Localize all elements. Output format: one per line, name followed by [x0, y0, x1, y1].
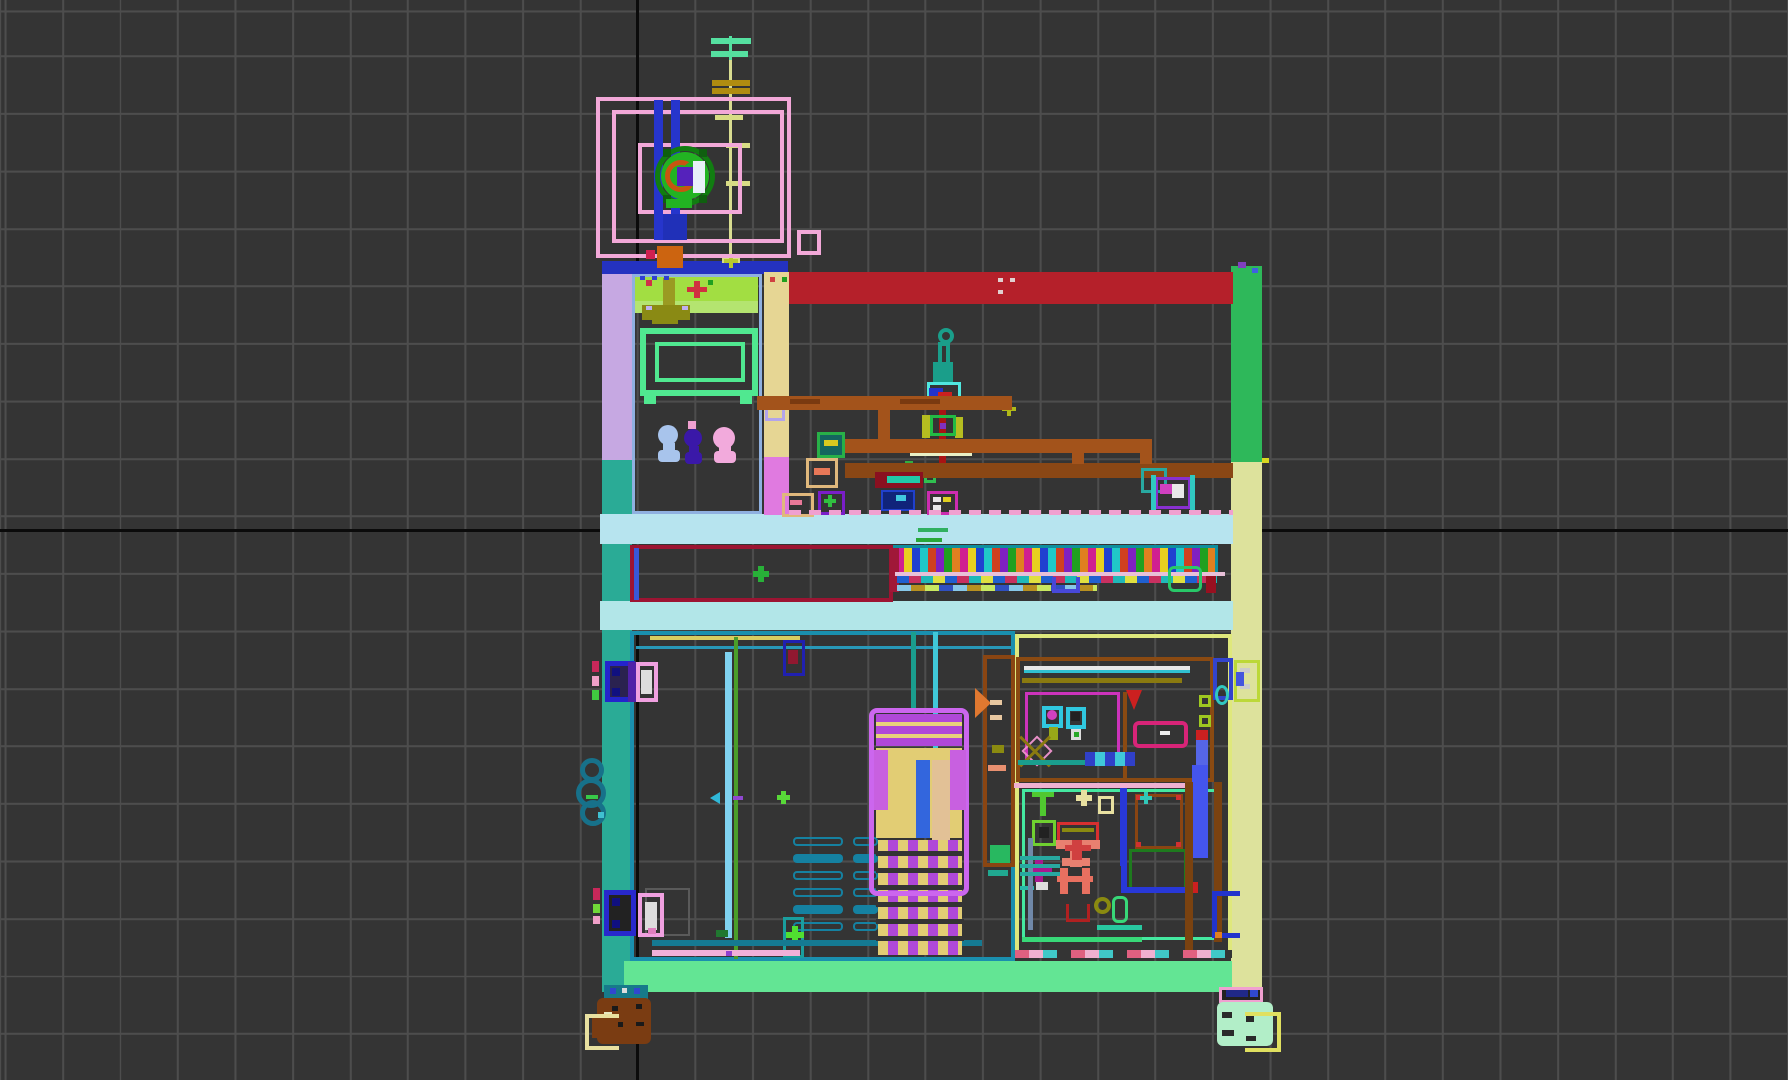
bulb-blue-base — [658, 450, 680, 462]
stacker-bar3 — [876, 738, 962, 746]
chamber-trap-dash2 — [682, 306, 688, 310]
bay-green-hline-938 — [1022, 937, 1142, 942]
door-cyan-arrow — [710, 792, 720, 804]
door-vline-lightblue — [725, 652, 732, 938]
bay-teal-plus-h — [1140, 796, 1152, 800]
camera-rail-l — [1151, 475, 1156, 511]
clamp-lower-blue — [604, 890, 636, 936]
spindle-square-small — [797, 230, 821, 255]
bay-blue-bracket — [1212, 891, 1240, 938]
spindle-crimson-dot — [646, 250, 655, 259]
stacker-vline-teal — [911, 632, 916, 708]
right-column-green — [1231, 266, 1262, 462]
hopper-salmon-dash — [988, 765, 1006, 771]
bay-grayblue-vline — [1028, 838, 1033, 930]
camera-unit-arch — [1172, 484, 1184, 498]
rail-top-mark1 — [790, 399, 820, 404]
foot-left-bracket — [585, 1014, 619, 1050]
panel-cyan-line — [1024, 670, 1190, 673]
drawer-green-plus — [753, 566, 769, 582]
rail-post-3 — [1140, 448, 1152, 464]
chamber-band-dot3 — [664, 276, 669, 280]
bay-red-open-rect — [1066, 904, 1090, 922]
fixture-purple-plus-h — [824, 499, 836, 503]
panel-red-tri — [1126, 690, 1142, 710]
sensor2-dot — [1071, 712, 1080, 721]
right-column-top-dot — [1238, 262, 1246, 268]
bay-red-t-h — [1065, 845, 1091, 851]
pink-dash-line — [789, 510, 1233, 515]
foot-left-cap-dot2 — [622, 988, 627, 993]
vent-slat-2a — [793, 854, 843, 863]
khaki-strip-dot-red — [770, 277, 775, 282]
red-beam-dot3 — [998, 290, 1003, 294]
door-green-hook — [716, 930, 728, 937]
hopper-brown-frame — [983, 655, 1015, 867]
bay-teal-hline1 — [1020, 856, 1060, 860]
foot-right-notch1 — [1222, 1012, 1232, 1018]
chamber-band-dot1 — [640, 276, 645, 280]
bay-green-capsule — [1112, 896, 1128, 923]
bay-olive-ring — [1094, 897, 1111, 914]
vent-slat-3a — [793, 871, 843, 880]
column-plate-blue — [1236, 672, 1244, 686]
camera-rail-r — [1190, 475, 1195, 511]
clamp-upper-strip-pink — [592, 676, 599, 686]
fixture-tan-1-bar — [814, 468, 830, 475]
panel-red-cap — [1196, 730, 1208, 740]
clamp-upper-strip-green — [592, 690, 599, 700]
antenna-bar-gold2 — [712, 88, 750, 94]
panel-lime-sq2 — [1199, 715, 1211, 727]
vent-slat-4a — [793, 888, 843, 897]
conveyor-green-dash — [916, 538, 942, 542]
bay-brown-dot2 — [1176, 795, 1181, 800]
base-beam-green — [624, 961, 1232, 992]
khaki-strip-right — [764, 272, 789, 457]
sensor2-foot-dot — [1074, 732, 1079, 737]
bay-white-bit — [1036, 882, 1048, 890]
chamber-band-dot-green — [708, 280, 713, 285]
foot-left-dot2 — [636, 1004, 642, 1009]
deck-green-dash — [918, 528, 948, 532]
clamp-upper-strip-crimson — [592, 661, 599, 672]
cyan-deck-lower — [600, 601, 1233, 630]
door-navy-glyph — [788, 650, 798, 664]
panel-lime-sq1 — [1199, 695, 1211, 707]
bulb-indigo-cap — [688, 421, 696, 429]
red-beam-dot2 — [1010, 278, 1015, 282]
conveyor-darkred-bit — [1206, 576, 1216, 593]
robot-olive-bar-r — [955, 417, 963, 438]
robot-green-box-dot — [940, 423, 946, 429]
bay-pink-line — [1014, 783, 1196, 788]
gear-hub-purple — [677, 167, 694, 186]
chamber-red-cross-h — [687, 287, 707, 293]
rail-post-2 — [1072, 452, 1084, 464]
gear-lug-tr — [699, 149, 707, 157]
conveyor-u-bracket — [1052, 577, 1080, 593]
clamp-upper-dot1 — [612, 668, 620, 676]
stacker-blue-bar — [916, 760, 930, 838]
fixture-purple-plus — [824, 495, 836, 507]
spindle-orange-block — [657, 246, 683, 268]
vent-slat-5a — [793, 905, 843, 914]
rail-top-mark2 — [900, 399, 940, 404]
khaki-strip-dot-green — [782, 277, 787, 282]
door-violet-dash — [733, 796, 743, 800]
camera-unit-magenta — [1160, 484, 1172, 494]
gear-stem-blue — [663, 214, 687, 240]
bay-blue-vline2 — [1121, 840, 1127, 892]
cabinet-left-khaki-line — [650, 636, 800, 640]
rail-post-1 — [878, 408, 890, 440]
bay-orange-dot — [1215, 932, 1222, 938]
stacker-bar2 — [876, 726, 962, 734]
hopper-green-bottom — [990, 845, 1010, 863]
column-bracket-curl — [1215, 685, 1229, 705]
drawer-green-plus-h — [753, 571, 769, 576]
foot-left-dot1 — [612, 1006, 618, 1011]
antenna-cross-h — [724, 259, 738, 264]
rail-mid — [842, 439, 1152, 453]
panel-bluecyan-dashes — [1085, 752, 1135, 766]
clamp-lower-pink-dot — [648, 928, 656, 934]
antenna-bar-gold1 — [712, 80, 750, 86]
viewport-canvas[interactable] — [0, 0, 1788, 1080]
bay-brown-vline1 — [1185, 782, 1193, 954]
side-gear-cyan-dot — [598, 812, 604, 818]
clamp-lower-pink-core — [645, 902, 657, 930]
foot-left-cap-dot3 — [634, 988, 640, 994]
hopper-dash1 — [990, 700, 1002, 705]
left-column-plum — [602, 274, 632, 460]
vent-slat-6b — [853, 922, 878, 931]
gear-bracket-white — [693, 161, 705, 193]
cabinet-left-cyan-line — [636, 646, 1011, 649]
antenna-bar-green2 — [711, 51, 748, 57]
bay-lime-t-h — [1032, 792, 1054, 797]
hopper-orange-arrow — [975, 688, 991, 718]
top-red-beam — [789, 272, 1233, 304]
clamp-lower-strip-pink — [593, 916, 600, 924]
bay-olive-line — [1062, 828, 1094, 832]
panel-olive-line — [1022, 678, 1182, 683]
stacker-blotch-l — [874, 750, 888, 810]
fixture-maroon-teal — [887, 476, 920, 483]
vent-slat-1a — [793, 837, 843, 846]
bulb-indigo-base — [685, 452, 702, 464]
hopper-olive-bit — [992, 745, 1004, 753]
clamp-upper-dot2 — [612, 688, 620, 696]
clamp-lower-strip-crimson — [593, 888, 600, 900]
clamp-lower-dot2 — [612, 920, 620, 928]
foot-right-notch3 — [1222, 1030, 1234, 1036]
bay-lime-box-core — [1039, 827, 1049, 838]
chamber-olive-stick — [663, 278, 675, 306]
side-gear-green-dash — [586, 795, 598, 799]
bay-khaki-plus-h — [1076, 795, 1092, 800]
robot-shoulder — [933, 362, 953, 382]
right-column-top-dot2 — [1252, 268, 1258, 273]
hopper-teal-dash — [988, 870, 1008, 876]
stacker-tan-bar — [932, 760, 950, 840]
bay-teal-plus — [1140, 792, 1152, 804]
stacker-check-gap5 — [876, 919, 964, 924]
bay-teal-hline-925 — [1097, 925, 1142, 930]
cabinet-left-violet-dot — [726, 951, 732, 956]
fixture-magenta-c2 — [943, 497, 951, 502]
clamp-upper-pink-core — [641, 670, 652, 694]
robot-olive-bar-l — [922, 415, 930, 438]
bay-clamp-h — [1057, 876, 1093, 882]
vent-slat-5b — [853, 905, 878, 914]
sensor1-dot — [1047, 710, 1057, 720]
stacker-check-gap4 — [876, 902, 964, 907]
bay-brown-dot4 — [1176, 842, 1181, 847]
bulb-pink-base — [714, 451, 736, 463]
foot-right-bracket — [1245, 1012, 1281, 1052]
bay-bottom-dashes — [1015, 950, 1232, 958]
chamber-band-dot-red — [646, 280, 652, 286]
chamber-trap-dash1 — [646, 306, 652, 310]
foot-right-navy-dash — [1226, 990, 1248, 997]
top-blue-band — [602, 261, 788, 274]
bulb-indigo-head — [684, 429, 702, 447]
bay-teal-hline2 — [1020, 864, 1060, 868]
gear-lug-tl — [663, 149, 671, 157]
foot-left-dot4 — [636, 1022, 644, 1026]
door-lime-plus-h — [777, 795, 790, 799]
chamber-red-cross — [687, 281, 707, 298]
gear-lug-br — [699, 195, 707, 203]
lime-plus-lower-h — [786, 932, 804, 938]
fixture-magenta-c1 — [933, 497, 941, 502]
window-frame-inner — [655, 342, 745, 382]
bay-khaki-plus — [1076, 790, 1092, 806]
fixture-tan-2-bar — [790, 500, 802, 505]
hopper-dash2 — [990, 715, 1002, 720]
red-beam-dot1 — [998, 278, 1003, 282]
bay-blue-hline — [1121, 887, 1195, 893]
drawer-blue-line — [634, 548, 639, 600]
foot-left-cap-dot1 — [610, 988, 616, 994]
clamp-lower-dot1 — [612, 898, 620, 906]
right-column-tick — [1262, 458, 1269, 463]
fixture-green-teal-bar — [824, 440, 838, 446]
conveyor-green-box — [1168, 566, 1202, 592]
antenna-bar-green1 — [711, 38, 751, 44]
foot-right-blue-dot — [1250, 990, 1258, 997]
fixture-blue-cyan — [896, 495, 906, 501]
bay-teal-hline3 — [1020, 872, 1060, 876]
stacker-bar1 — [876, 714, 962, 722]
bay-khaki-glyph — [1098, 796, 1114, 814]
stacker-check-gap6 — [876, 936, 964, 941]
bay-brown-dot3 — [1136, 842, 1141, 847]
chamber-band-dot2 — [652, 276, 657, 280]
panel-crimson-dash — [1160, 731, 1170, 735]
bay-blue-wide-bar — [1192, 765, 1208, 858]
chamber-trapezoid-b — [652, 318, 678, 324]
door-lime-plus — [777, 791, 790, 804]
window-leg-right — [740, 396, 752, 404]
clamp-lower-strip-lime — [593, 904, 600, 913]
bulb-blue-head — [658, 425, 678, 445]
gear-foot — [666, 199, 692, 208]
window-leg-left — [644, 396, 656, 404]
stacker-blotch-r — [950, 750, 966, 810]
